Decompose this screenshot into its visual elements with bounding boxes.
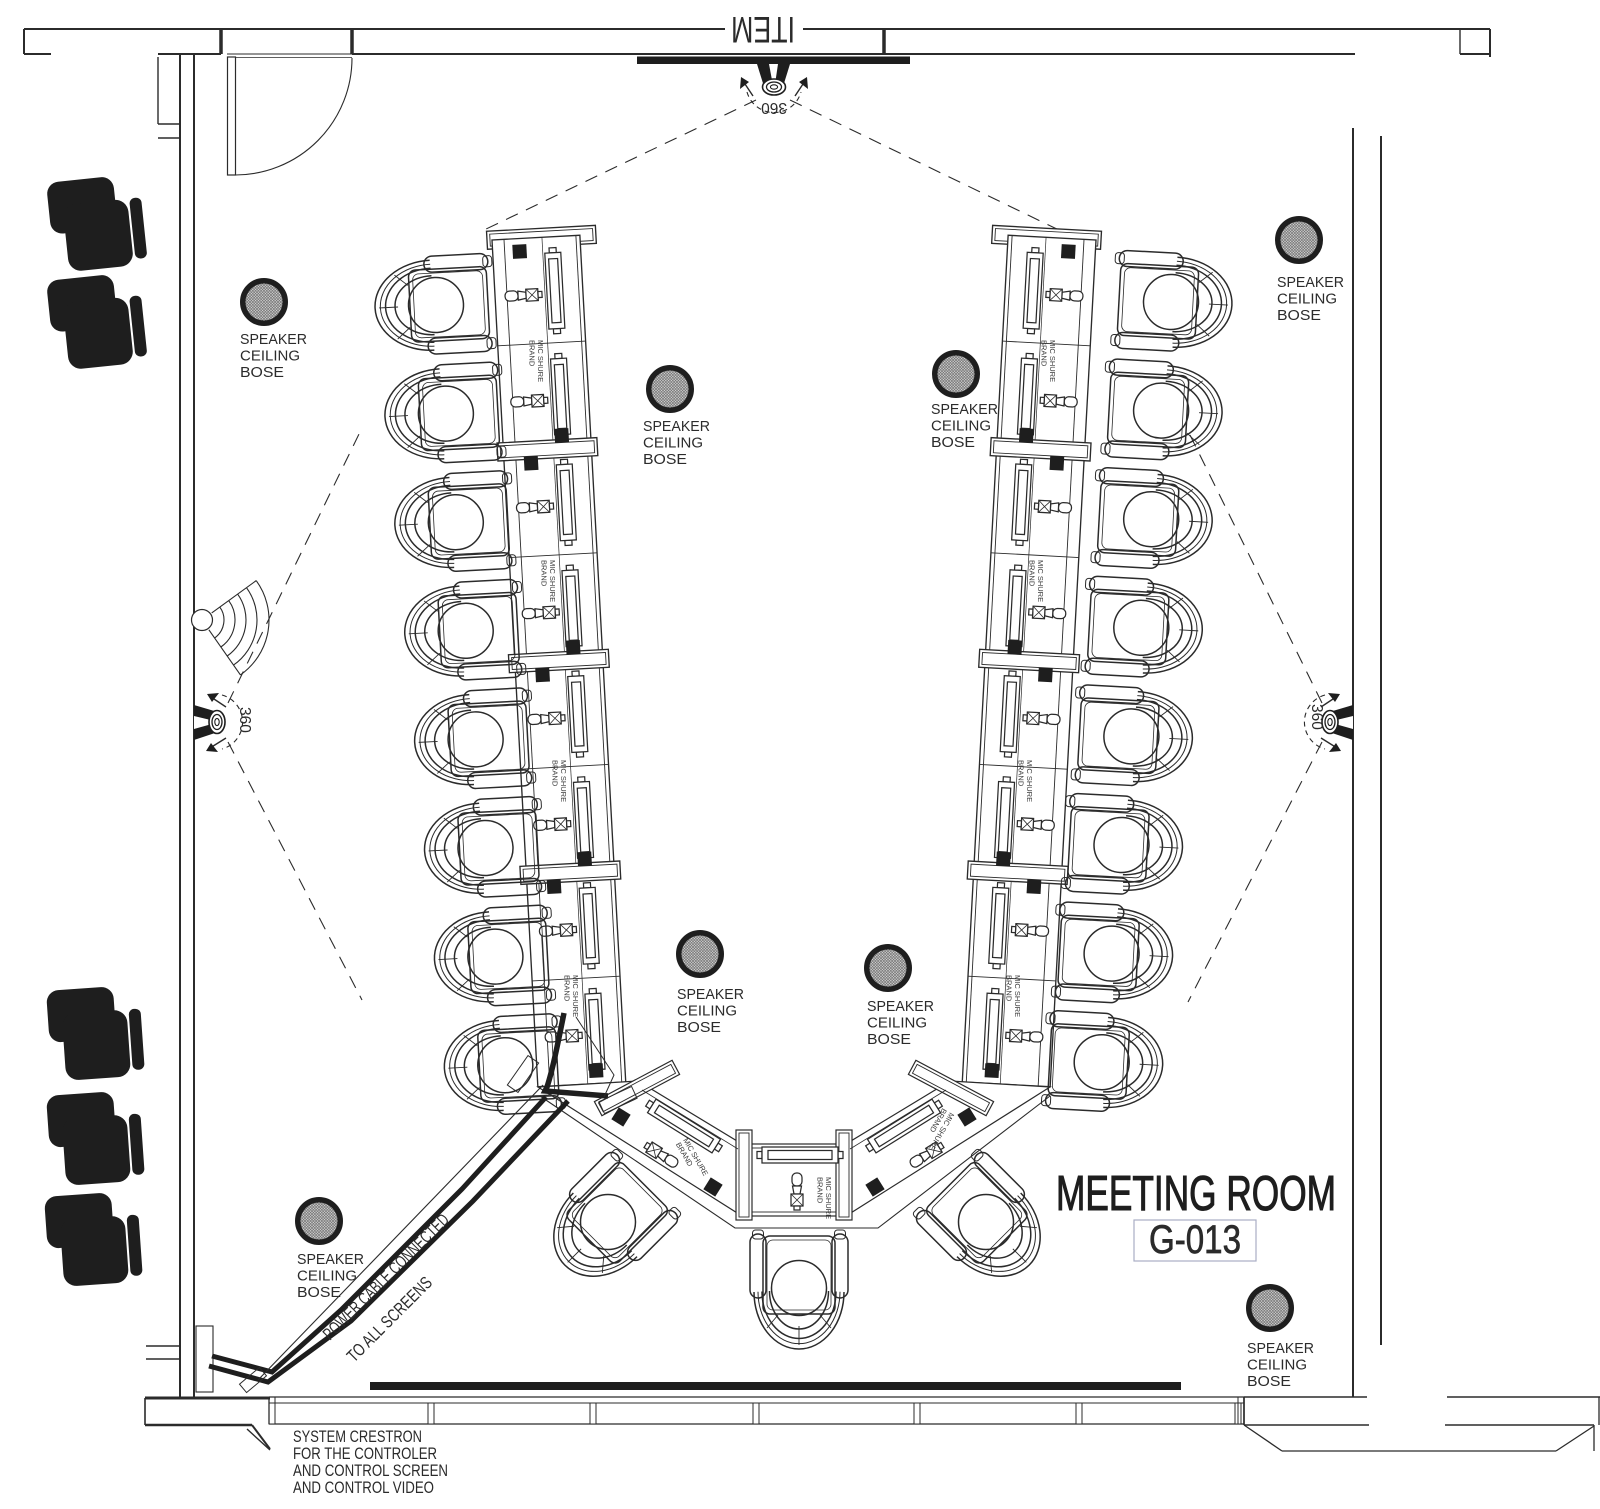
svg-text:SYSTEM CRESTRON: SYSTEM CRESTRON <box>293 1428 422 1446</box>
svg-text:360: 360 <box>1308 704 1325 730</box>
svg-text:AND CONTROL SCREEN: AND CONTROL SCREEN <box>293 1462 448 1480</box>
svg-text:BRAND: BRAND <box>563 975 572 1002</box>
svg-text:ITEM: ITEM <box>731 9 795 50</box>
svg-text:G-013: G-013 <box>1149 1218 1241 1262</box>
svg-text:AND CONTROL VIDEO: AND CONTROL VIDEO <box>293 1479 434 1497</box>
svg-text:360: 360 <box>761 99 787 116</box>
svg-text:FOR THE CONTROLER: FOR THE CONTROLER <box>293 1445 437 1463</box>
svg-text:BRAND: BRAND <box>551 760 560 787</box>
svg-text:BRAND: BRAND <box>1040 340 1049 367</box>
svg-text:BRAND: BRAND <box>540 560 549 587</box>
svg-text:BRAND: BRAND <box>816 1177 825 1204</box>
svg-text:BRAND: BRAND <box>528 340 537 367</box>
svg-text:BRAND: BRAND <box>1028 560 1037 587</box>
svg-text:BRAND: BRAND <box>1017 760 1026 787</box>
svg-text:360: 360 <box>236 707 253 733</box>
svg-text:BRAND: BRAND <box>1005 975 1014 1002</box>
svg-text:MEETING ROOM: MEETING ROOM <box>1056 1167 1336 1221</box>
